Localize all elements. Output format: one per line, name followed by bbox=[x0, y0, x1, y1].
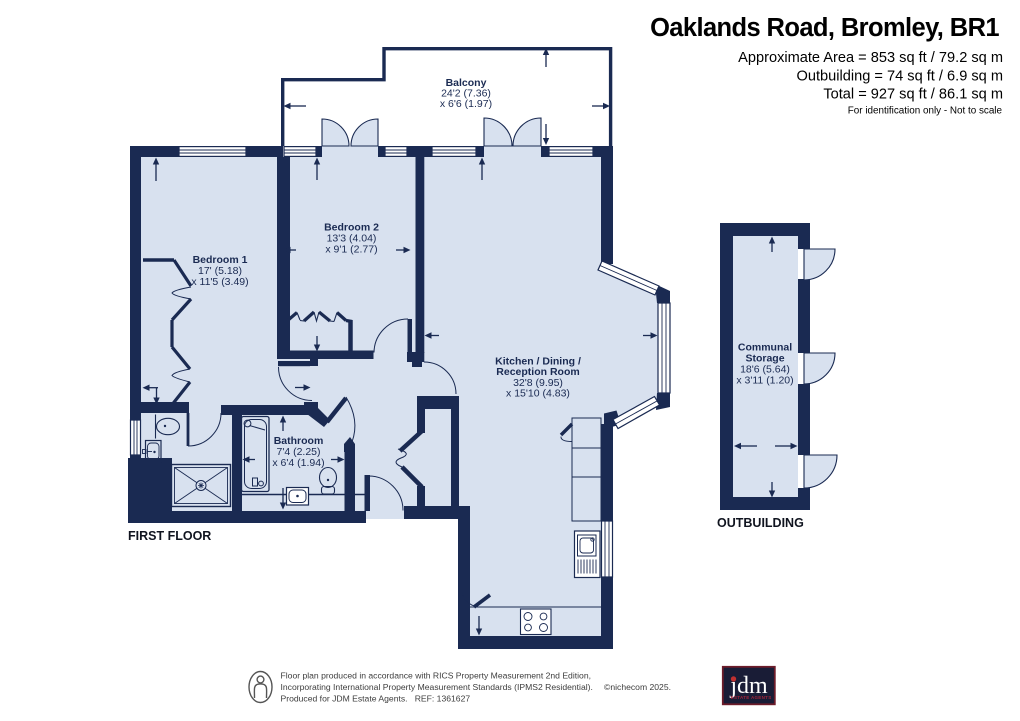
svg-text:Oaklands Road, Bromley, BR1: Oaklands Road, Bromley, BR1 bbox=[650, 14, 999, 42]
svg-text:Floor plan produced in accorda: Floor plan produced in accordance with R… bbox=[281, 671, 592, 681]
svg-text:Total = 927 sq ft / 86.1 sq m: Total = 927 sq ft / 86.1 sq m bbox=[823, 87, 1003, 103]
svg-text:Outbuilding = 74 sq ft / 6.9 s: Outbuilding = 74 sq ft / 6.9 sq m bbox=[797, 69, 1003, 85]
svg-text:©nichecom 2025.: ©nichecom 2025. bbox=[604, 682, 671, 692]
svg-text:x 3'11 (1.20): x 3'11 (1.20) bbox=[736, 375, 793, 387]
svg-text:ESTATE AGENTS: ESTATE AGENTS bbox=[731, 695, 772, 700]
svg-text:OUTBUILDING: OUTBUILDING bbox=[717, 516, 804, 530]
svg-text:x 15'10 (4.83): x 15'10 (4.83) bbox=[506, 388, 570, 400]
svg-text:x 11'5 (3.49): x 11'5 (3.49) bbox=[191, 276, 248, 288]
svg-text:For identification only - Not: For identification only - Not to scale bbox=[848, 106, 1003, 117]
svg-text:Approximate Area = 853 sq ft /: Approximate Area = 853 sq ft / 79.2 sq m bbox=[738, 50, 1003, 66]
svg-text:x 6'6 (1.97): x 6'6 (1.97) bbox=[440, 98, 492, 110]
svg-text:Produced for JDM Estate Agents: Produced for JDM Estate Agents. REF: 136… bbox=[281, 693, 471, 703]
svg-text:x 6'4 (1.94): x 6'4 (1.94) bbox=[272, 457, 324, 469]
svg-text:Incorporating International Pr: Incorporating International Property Mea… bbox=[281, 682, 593, 692]
svg-text:x 9'1 (2.77): x 9'1 (2.77) bbox=[325, 244, 377, 256]
svg-text:FIRST FLOOR: FIRST FLOOR bbox=[128, 529, 211, 543]
